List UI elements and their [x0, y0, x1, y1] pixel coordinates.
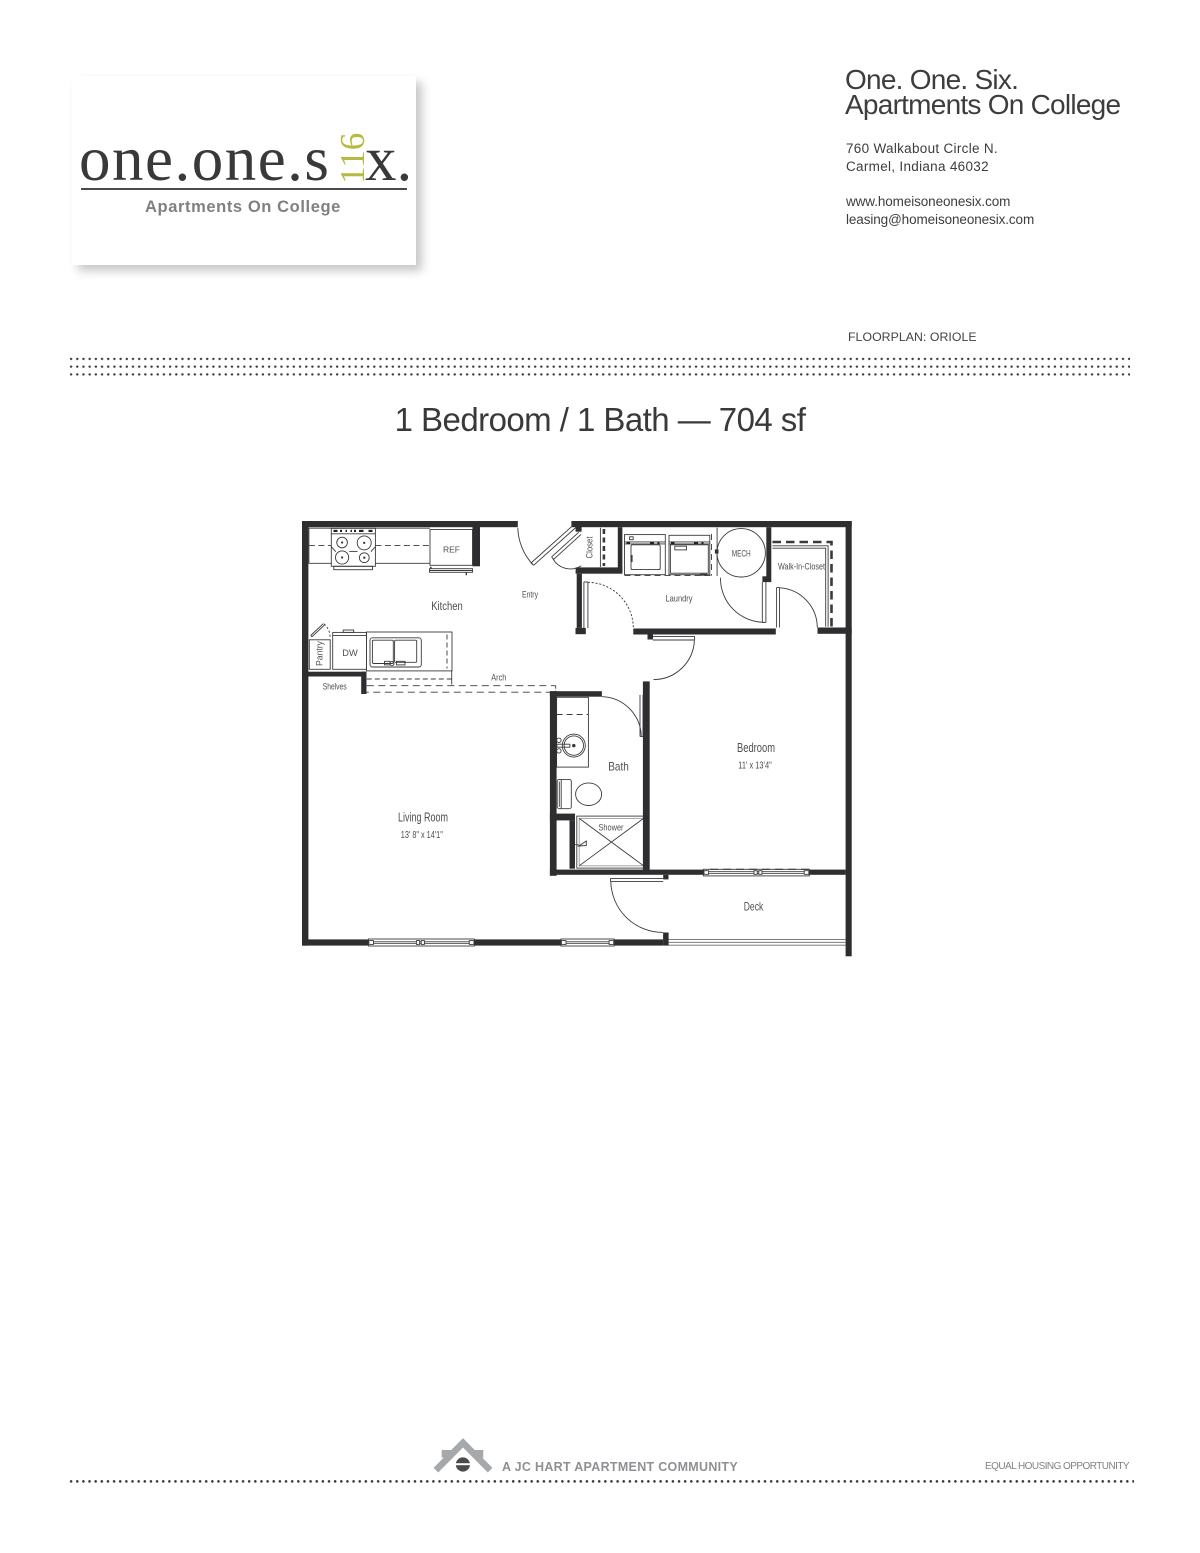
svg-text:REF: REF [443, 545, 460, 555]
svg-text:Living Room: Living Room [398, 811, 448, 825]
svg-text:MECH: MECH [732, 548, 751, 558]
svg-text:Bath: Bath [608, 760, 629, 774]
svg-text:Entry: Entry [522, 590, 538, 601]
svg-text:DW: DW [342, 648, 358, 659]
svg-text:13' 8" x 14'1": 13' 8" x 14'1" [401, 830, 443, 841]
svg-text:Pantry: Pantry [315, 641, 326, 666]
svg-text:Arch: Arch [491, 673, 506, 684]
svg-text:Walk-In-Closet: Walk-In-Closet [778, 562, 825, 572]
svg-text:Shower: Shower [599, 823, 624, 834]
svg-text:11' x 13'4": 11' x 13'4" [738, 761, 772, 772]
svg-text:Deck: Deck [744, 900, 764, 914]
svg-text:Kitchen: Kitchen [431, 601, 463, 613]
svg-text:Bedroom: Bedroom [737, 741, 775, 755]
svg-text:Laundry: Laundry [666, 594, 693, 605]
svg-text:Shelves: Shelves [323, 681, 347, 692]
svg-text:Closet: Closet [585, 536, 596, 558]
